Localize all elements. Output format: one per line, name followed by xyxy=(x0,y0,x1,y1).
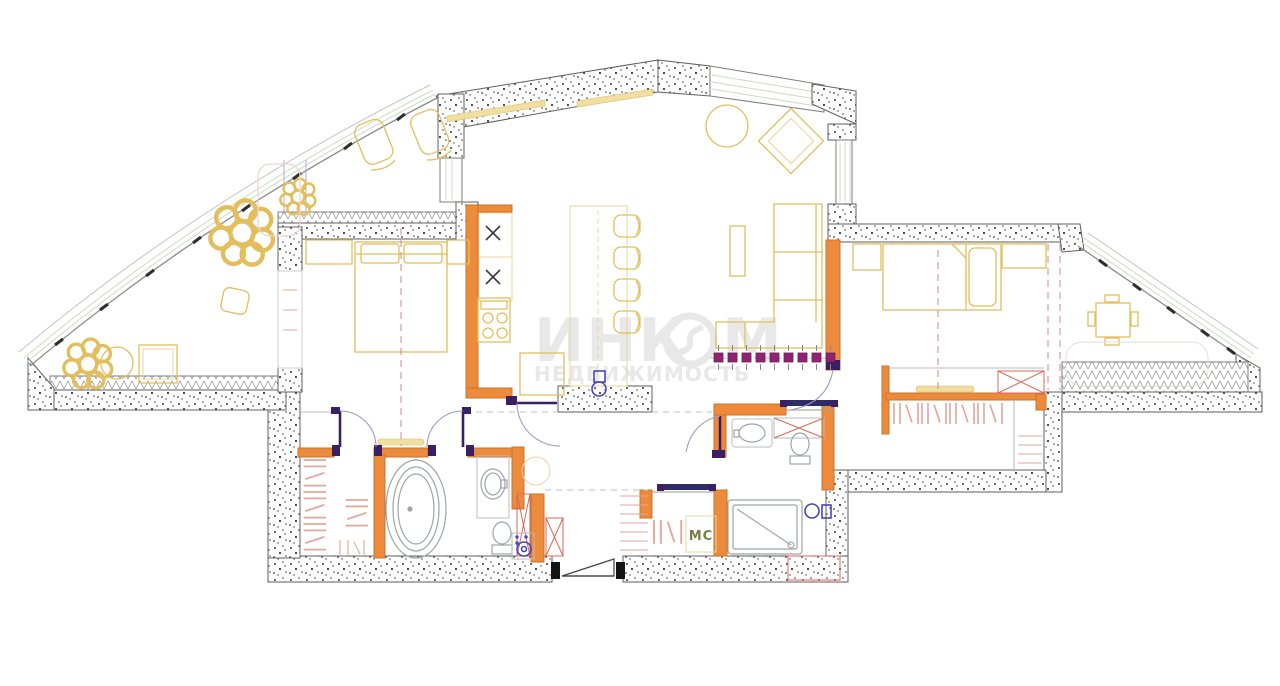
nightstand xyxy=(853,244,881,270)
blanket xyxy=(969,248,996,306)
tv-stand xyxy=(730,226,745,276)
wall-left-vertical xyxy=(268,390,300,558)
toilet-icon xyxy=(492,522,512,554)
wall-kitchen-bedroom1 xyxy=(466,205,478,395)
bedroom-2 xyxy=(853,244,1060,472)
terrace-boundary-dashed xyxy=(1048,244,1060,390)
kitchen-sink-icon xyxy=(486,226,500,284)
wall-terrace-stub xyxy=(1036,394,1046,410)
bedroom1-niche xyxy=(278,271,302,368)
wardrobe-hangers xyxy=(894,403,1042,463)
terrace-left xyxy=(64,107,454,388)
terrace-table xyxy=(1088,295,1138,345)
wall-right-terrace-bottom xyxy=(1062,392,1262,412)
wall-bath2-north xyxy=(714,404,786,415)
shower-tray-icon xyxy=(728,500,802,554)
floor-plan-page: ИНК М НЕДВИЖИМОСТЬ xyxy=(0,0,1280,686)
wall-bedroom1-west-2 xyxy=(278,368,302,392)
sink-icon xyxy=(481,469,507,499)
wall-bath1-west xyxy=(374,455,385,558)
wall-closet-front-1 xyxy=(298,448,334,457)
closet-left xyxy=(304,460,368,556)
wardrobe2-rail xyxy=(886,393,1044,400)
sink-icon xyxy=(734,424,765,442)
plant-icon xyxy=(280,179,315,215)
wall-top-ridge xyxy=(658,60,710,96)
vanity xyxy=(732,419,772,447)
wall-bottom-right xyxy=(623,556,848,582)
round-dining-table xyxy=(706,105,748,147)
door-swing xyxy=(517,403,560,446)
wall-terrace-bottom xyxy=(28,390,286,410)
wall-living-east xyxy=(826,240,840,370)
wall-right-upper xyxy=(828,124,856,140)
cooktop-icon xyxy=(478,298,510,342)
bathtub-icon xyxy=(386,460,446,558)
shelf-bar-2 xyxy=(916,386,974,392)
wall-hall-north xyxy=(466,388,512,398)
sliding-door xyxy=(786,400,832,406)
terrace-chair xyxy=(220,287,250,316)
mirror xyxy=(522,457,550,485)
apartment-floor-plan: ИНК М НЕДВИЖИМОСТЬ xyxy=(0,0,1280,686)
bathroom-2 xyxy=(732,418,824,464)
nightstand xyxy=(1002,244,1046,268)
double-bed xyxy=(883,244,1001,310)
bedroom-1 xyxy=(278,228,469,446)
wall-kitchen-top-stub xyxy=(478,205,512,212)
window-kitchen-west xyxy=(440,158,462,202)
door-swing xyxy=(427,411,463,447)
dresser xyxy=(306,240,352,264)
entrance-door xyxy=(551,559,625,579)
wall-bath2-east xyxy=(822,404,834,490)
wall-top-right-corner xyxy=(812,84,856,124)
wall-terrace-west-corner xyxy=(28,358,54,410)
door-swing xyxy=(340,411,376,447)
wall-hall-column xyxy=(558,386,652,412)
bathroom-1 xyxy=(386,460,446,558)
wall-bottom-left xyxy=(268,556,552,582)
wall-right-terrace-bottom-insulation xyxy=(1062,362,1248,392)
watermark-subtitle: НЕДВИЖИМОСТЬ xyxy=(534,362,750,386)
wall-kitchen-west xyxy=(438,94,464,158)
wall-wc-east xyxy=(531,494,544,562)
wardrobe-2 xyxy=(889,368,1044,472)
utility-room-label: МС xyxy=(689,529,713,544)
wall-bedroom1-top xyxy=(278,223,462,239)
wall-right-wing-top xyxy=(828,224,1062,242)
wall-right-step xyxy=(1044,392,1062,492)
wall-bedroom1-west-1 xyxy=(278,227,302,271)
sliding-door xyxy=(664,484,712,490)
wall-right-wing-bottom xyxy=(848,470,1046,492)
